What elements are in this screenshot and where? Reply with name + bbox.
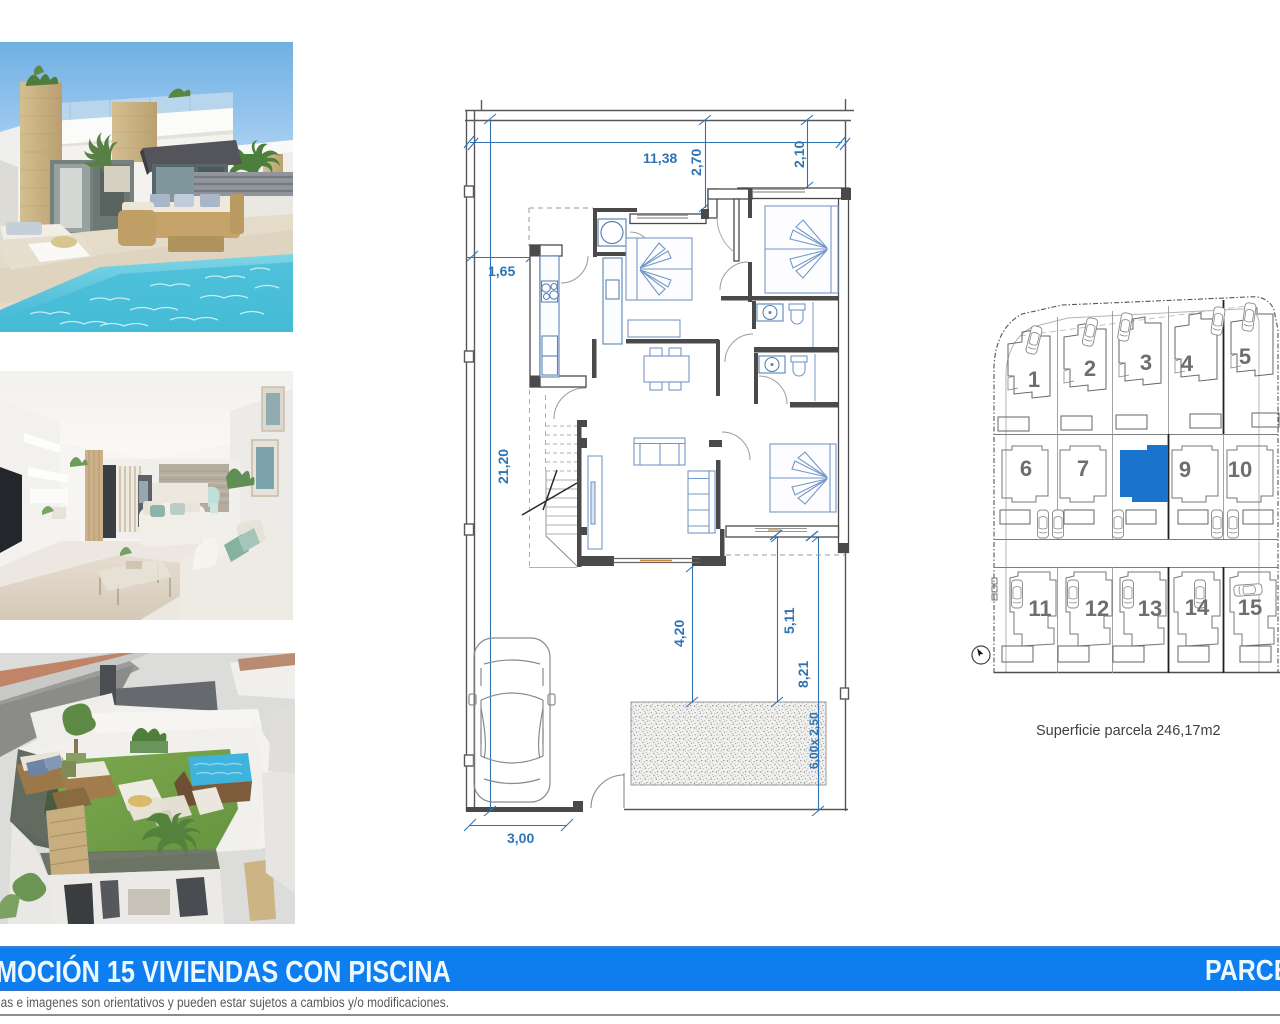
svg-text:15: 15 — [1238, 595, 1262, 620]
svg-text:11,38: 11,38 — [643, 150, 677, 166]
svg-text:13: 13 — [1138, 596, 1162, 621]
svg-text:3: 3 — [1140, 350, 1152, 375]
svg-text:6: 6 — [1020, 456, 1032, 481]
svg-text:12: 12 — [1085, 596, 1109, 621]
svg-text:21,20: 21,20 — [495, 449, 511, 484]
svg-text:5,11: 5,11 — [781, 607, 797, 634]
svg-text:11: 11 — [1028, 596, 1051, 621]
svg-text:5: 5 — [1239, 344, 1251, 369]
svg-text:9: 9 — [1179, 457, 1191, 482]
svg-text:14: 14 — [1185, 595, 1210, 620]
svg-text:10: 10 — [1228, 457, 1252, 482]
svg-text:2,10: 2,10 — [791, 141, 807, 168]
svg-text:1: 1 — [1028, 367, 1040, 392]
svg-text:2: 2 — [1084, 356, 1096, 381]
svg-text:1,65: 1,65 — [488, 263, 515, 279]
svg-text:3,00: 3,00 — [507, 830, 534, 846]
svg-text:7: 7 — [1077, 456, 1089, 481]
svg-text:4,20: 4,20 — [671, 620, 687, 647]
svg-text:2,70: 2,70 — [688, 149, 704, 176]
svg-text:4: 4 — [1181, 351, 1194, 376]
svg-text:8,21: 8,21 — [795, 661, 811, 688]
svg-text:6,00x 2,50: 6,00x 2,50 — [807, 712, 821, 769]
